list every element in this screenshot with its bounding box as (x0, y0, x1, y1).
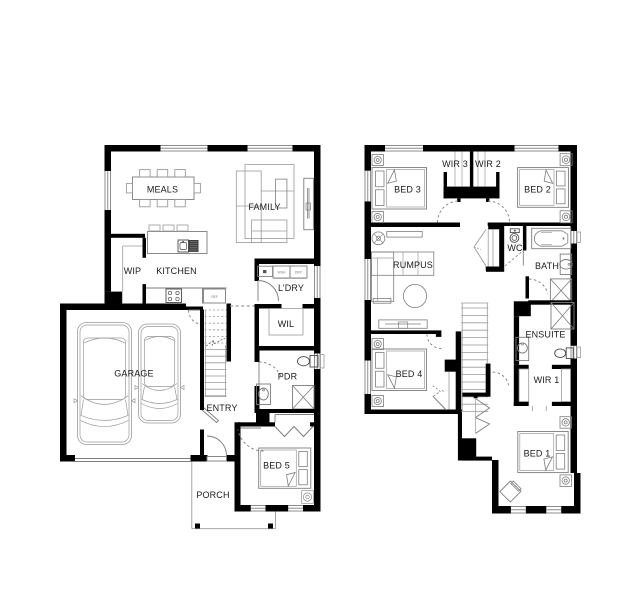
svg-text:MEALS: MEALS (147, 185, 178, 195)
svg-text:L’DRY: L’DRY (278, 283, 304, 293)
svg-text:WIR 1: WIR 1 (534, 375, 560, 385)
svg-text:WC: WC (507, 243, 523, 253)
svg-text:PORCH: PORCH (196, 490, 229, 500)
svg-text:PDR: PDR (278, 372, 298, 382)
svg-text:BED 1: BED 1 (524, 449, 551, 459)
svg-text:KITCHEN: KITCHEN (156, 266, 197, 276)
svg-text:BED 2: BED 2 (524, 185, 551, 195)
svg-text:BED 3: BED 3 (394, 184, 421, 194)
svg-text:WIP: WIP (124, 266, 141, 276)
svg-text:DRY: DRY (295, 271, 303, 275)
svg-text:WSH: WSH (278, 271, 286, 275)
svg-text:BED 5: BED 5 (263, 461, 290, 471)
svg-text:ENSUITE: ENSUITE (525, 329, 565, 339)
svg-text:ENTRY: ENTRY (206, 403, 237, 413)
svg-text:RUMPUS: RUMPUS (393, 260, 433, 270)
svg-text:WIR 2: WIR 2 (475, 159, 501, 169)
svg-text:FAMILY: FAMILY (248, 202, 280, 212)
svg-text:GARAGE: GARAGE (114, 369, 153, 379)
svg-text:WIL: WIL (278, 319, 294, 329)
svg-text:WIR 3: WIR 3 (442, 159, 468, 169)
svg-text:BED 4: BED 4 (396, 369, 423, 379)
svg-text:BATH: BATH (535, 261, 559, 271)
svg-text:REF: REF (211, 295, 217, 299)
